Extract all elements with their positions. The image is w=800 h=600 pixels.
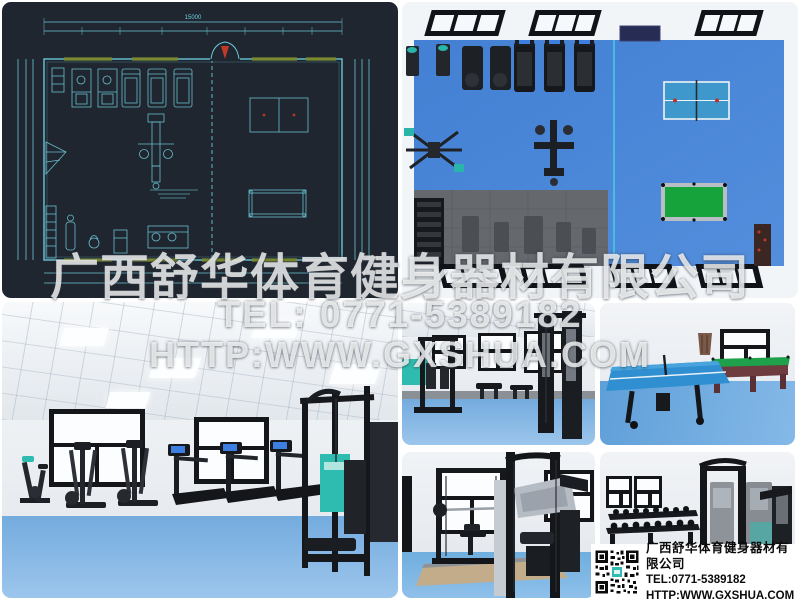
gym-equipment-silhouettes xyxy=(2,302,398,598)
cable-tower xyxy=(534,311,586,439)
elliptical-machine xyxy=(117,440,158,506)
smith-machine-render-image xyxy=(402,452,595,598)
cad-floor-plan-image: 15000 xyxy=(2,2,398,298)
qr-code-icon xyxy=(594,549,640,595)
skylight-windows-top xyxy=(424,10,763,36)
cad-equipment-symbols xyxy=(46,68,308,258)
info-tel: TEL:0771-5389182 xyxy=(646,572,800,588)
tables-silhouettes xyxy=(600,303,795,445)
machines-silhouettes xyxy=(402,303,595,445)
info-url: HTTP:WWW.GXSHUA.COM xyxy=(646,588,800,600)
pool-table-topview xyxy=(661,182,727,221)
cad-door xyxy=(210,42,240,61)
pingpong-room-render-image xyxy=(600,303,795,445)
cable-station xyxy=(414,337,462,413)
smith-silhouettes xyxy=(402,452,595,598)
topview-render-image xyxy=(402,2,798,298)
topview-drawing xyxy=(402,2,798,298)
ceiling-panel xyxy=(620,26,660,41)
wall-rack xyxy=(754,224,771,266)
cad-window-segments xyxy=(64,59,336,260)
dumbbell-rack-topview xyxy=(414,198,444,264)
multi-gym-machine xyxy=(300,386,398,576)
left-frame-edge xyxy=(402,476,412,552)
gym-machines-render-image xyxy=(402,303,595,445)
bench xyxy=(476,383,533,399)
table-tennis-table xyxy=(606,355,730,429)
cad-drawing: 15000 xyxy=(2,2,398,298)
company-info-box: 广西舒华体育健身器材有限公司 TEL:0771-5389182 HTTP:WWW… xyxy=(591,544,800,600)
gym-cardio-render-image xyxy=(2,302,398,598)
cad-dimension-label: 15000 xyxy=(185,15,202,21)
exercise-bike xyxy=(20,456,50,503)
treadmill xyxy=(168,444,228,505)
elliptical-machine xyxy=(65,442,106,508)
treadmill xyxy=(270,440,326,501)
info-company: 广西舒华体育健身器材有限公司 xyxy=(646,540,800,572)
treadmill xyxy=(220,442,278,503)
gym-promo-collage: 15000 xyxy=(0,0,800,600)
table-tennis-topview xyxy=(664,80,729,121)
cue-rack xyxy=(698,333,712,355)
